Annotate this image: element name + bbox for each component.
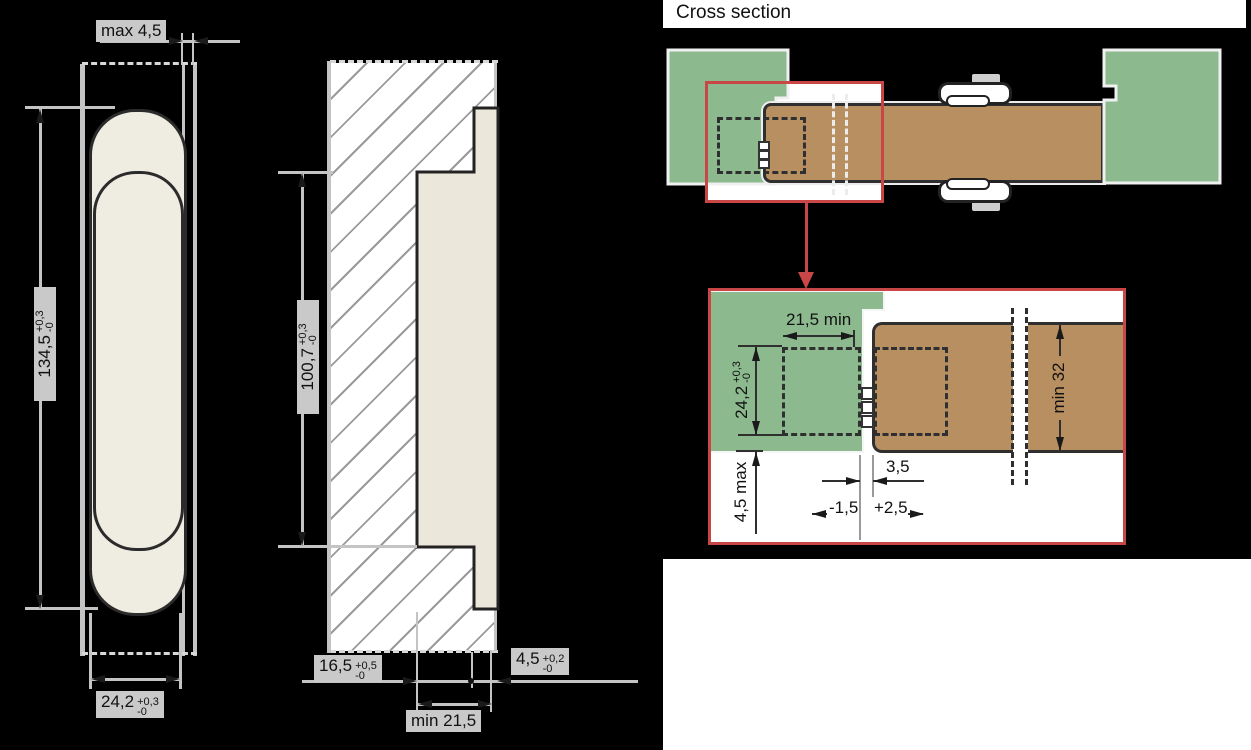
- door-top-dashed-edge: [82, 62, 197, 65]
- h1345-dim-label: 134,5+0,3-0: [34, 287, 56, 401]
- d165-arrow-right: [403, 677, 417, 685]
- bottom-white-area: [663, 559, 1251, 750]
- detail-box-border: [708, 288, 1126, 545]
- hinge-body-profile: [413, 104, 503, 614]
- door-edge-line-right-outer: [193, 64, 197, 656]
- max45-arrow-left: [194, 37, 208, 45]
- h1345-arrow-up: [36, 109, 44, 123]
- detail-leader-line: [805, 203, 808, 275]
- dim-reference-dot: [468, 678, 474, 684]
- section-left-edge-line: [327, 61, 331, 653]
- min215-arrow-right: [478, 700, 492, 708]
- f45-dim-label: 4,5+0,2-0: [511, 648, 569, 675]
- max45-dim-label: max 4,5: [96, 20, 166, 42]
- h1007-dim-label: 100,7+0,3-0: [297, 300, 319, 414]
- technical-drawing-canvas: max 4,5 134,5+0,3-0 24,2+0,3-0 100,7+0,3…: [0, 0, 1251, 750]
- h1007-arrow-up: [298, 173, 306, 187]
- h1345-arrow-down: [36, 595, 44, 609]
- bottom-ext-line-417: [416, 612, 418, 712]
- faceplate-outline-inner: [93, 171, 184, 551]
- f45-arrow-left: [497, 677, 511, 685]
- min215-arrow-left: [418, 700, 432, 708]
- h1007-arrow-down: [298, 532, 306, 546]
- d165-dim-label: 16,5+0,5-0: [314, 655, 382, 682]
- w242-arrow-right: [166, 675, 180, 683]
- cross-section-title: Cross section: [676, 3, 791, 23]
- hinge-clip-bottom-inner: [946, 178, 990, 190]
- frame-section-right: [1100, 48, 1224, 187]
- min215-dim-label: min 21,5: [406, 710, 481, 732]
- max45-arrow-right: [169, 37, 183, 45]
- w242-arrow-left: [91, 675, 105, 683]
- hinge-clip-top-inner: [946, 95, 990, 107]
- detail-leader-arrowhead: [798, 272, 814, 289]
- overview-highlight-box: [705, 81, 884, 203]
- door-edge-line-left: [80, 64, 85, 656]
- w242-dim-label: 24,2+0,3-0: [96, 691, 164, 718]
- section-top-dashed-edge: [330, 60, 498, 63]
